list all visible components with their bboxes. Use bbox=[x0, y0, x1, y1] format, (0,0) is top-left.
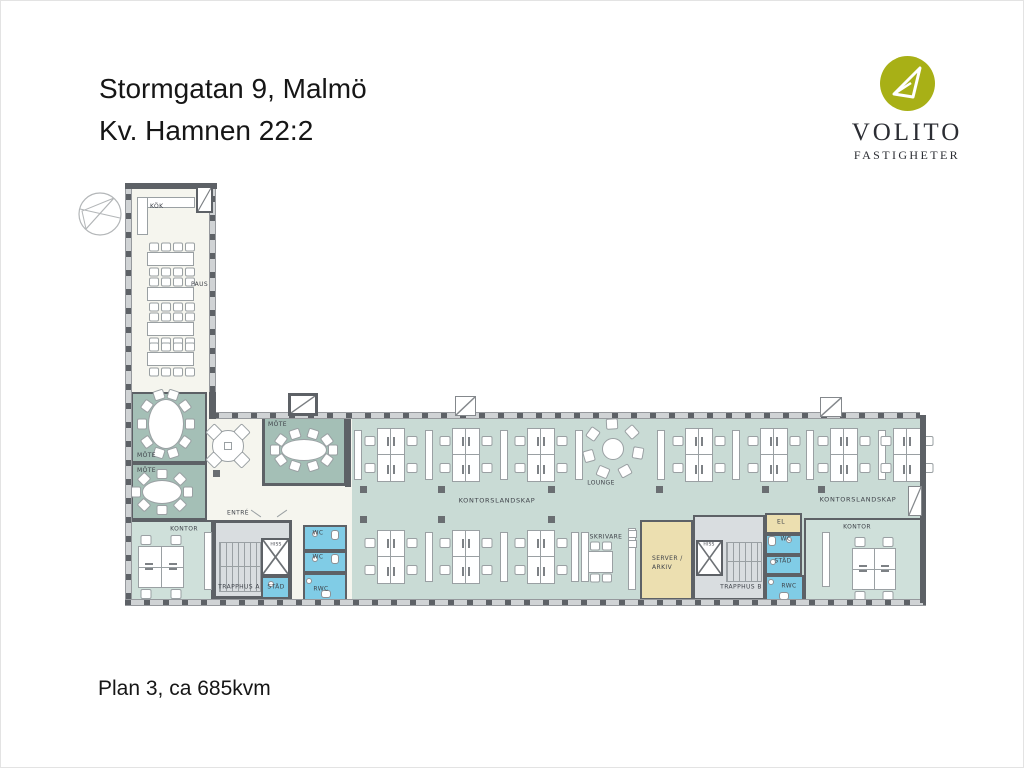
desk-divider bbox=[843, 428, 844, 482]
room-label-mote-center: MÖTE bbox=[268, 421, 287, 428]
area-label-kontorslandskap-right: KONTORSLANDSKAP bbox=[820, 497, 897, 504]
monitor bbox=[770, 465, 772, 474]
chair bbox=[173, 343, 183, 352]
chair bbox=[855, 537, 866, 547]
monitor bbox=[695, 437, 697, 446]
room-label-server-1: SERVER / bbox=[652, 555, 683, 562]
monitor bbox=[462, 567, 464, 576]
chair bbox=[185, 313, 195, 322]
chair bbox=[790, 463, 801, 473]
monitor bbox=[468, 539, 470, 548]
monitor bbox=[909, 465, 911, 474]
monitor bbox=[145, 563, 153, 565]
area-label-kontorslandskap-left: KONTORSLANDSKAP bbox=[459, 498, 536, 505]
cabinet bbox=[500, 532, 508, 582]
chair bbox=[818, 436, 829, 446]
room-label-rwc-w: RWC bbox=[313, 586, 328, 593]
monitor bbox=[537, 539, 539, 548]
monitor bbox=[387, 437, 389, 446]
chair bbox=[173, 243, 183, 252]
monitor bbox=[701, 437, 703, 446]
desk-cluster bbox=[527, 428, 555, 482]
chair bbox=[185, 243, 195, 252]
monitor bbox=[393, 567, 395, 576]
room-label-kontor-sw: KONTOR bbox=[170, 526, 198, 533]
room-label-trapphus-b: TRAPPHUS B bbox=[720, 584, 762, 591]
chair bbox=[515, 538, 526, 548]
conference-table bbox=[281, 439, 327, 461]
chair bbox=[590, 574, 600, 583]
chair bbox=[173, 368, 183, 377]
monitor bbox=[462, 437, 464, 446]
column bbox=[213, 470, 220, 477]
room-label-hiss-b: HISS bbox=[703, 542, 714, 549]
toilet-fixture bbox=[768, 536, 776, 546]
chair bbox=[270, 445, 280, 456]
window-band-west bbox=[125, 189, 132, 599]
monitor bbox=[695, 465, 697, 474]
monitor bbox=[393, 465, 395, 474]
entry-table-center bbox=[224, 442, 232, 450]
chair bbox=[407, 565, 418, 575]
desk-divider bbox=[465, 530, 466, 584]
east-door-box bbox=[908, 486, 922, 516]
chair bbox=[407, 463, 418, 473]
chair bbox=[881, 463, 892, 473]
chair bbox=[157, 469, 168, 479]
room-label-stad-a: STÄD bbox=[267, 584, 284, 591]
room-label-wc-e: WC bbox=[781, 536, 792, 543]
desk-cluster bbox=[452, 530, 480, 584]
monitor bbox=[701, 465, 703, 474]
cabinet bbox=[571, 532, 579, 582]
desk-divider bbox=[390, 530, 391, 584]
desk-divider bbox=[698, 428, 699, 482]
room-label-stad-e: STÄD bbox=[774, 558, 791, 565]
skrivare-table bbox=[588, 551, 613, 573]
cabinet bbox=[425, 532, 433, 582]
monitor bbox=[903, 437, 905, 446]
desk-divider bbox=[390, 428, 391, 482]
cabinet bbox=[500, 430, 508, 480]
chair bbox=[440, 538, 451, 548]
chair bbox=[673, 463, 684, 473]
monitor bbox=[468, 437, 470, 446]
facade-box bbox=[288, 393, 318, 416]
chair bbox=[715, 436, 726, 446]
chair bbox=[185, 419, 195, 430]
desk-divider bbox=[893, 454, 921, 455]
desk-cluster bbox=[377, 530, 405, 584]
kitchen-counter bbox=[137, 197, 148, 235]
lounge-table bbox=[602, 438, 624, 460]
room-wc-w2 bbox=[303, 551, 347, 573]
printer-unit bbox=[628, 530, 637, 538]
chair bbox=[173, 268, 183, 277]
chair bbox=[173, 303, 183, 312]
room-label-kontor-se: KONTOR bbox=[843, 524, 871, 531]
chair bbox=[673, 436, 684, 446]
cabinet bbox=[425, 430, 433, 480]
monitor bbox=[543, 437, 545, 446]
cabinet bbox=[657, 430, 665, 480]
facade-box bbox=[820, 397, 842, 417]
chair bbox=[185, 303, 195, 312]
monitor bbox=[776, 437, 778, 446]
chair bbox=[365, 565, 376, 575]
chair bbox=[407, 436, 418, 446]
column bbox=[360, 486, 367, 493]
chair bbox=[881, 436, 892, 446]
chair bbox=[482, 565, 493, 575]
monitor bbox=[881, 565, 889, 567]
chair bbox=[365, 538, 376, 548]
desk-divider bbox=[452, 556, 480, 557]
monitor bbox=[840, 437, 842, 446]
chair bbox=[557, 436, 568, 446]
chair bbox=[590, 542, 600, 551]
chair bbox=[365, 463, 376, 473]
monitor bbox=[537, 567, 539, 576]
room-label-wc-w2: WC bbox=[313, 554, 324, 561]
chair bbox=[161, 268, 171, 277]
chair bbox=[173, 313, 183, 322]
chair bbox=[883, 537, 894, 547]
chair bbox=[748, 436, 759, 446]
monitor bbox=[387, 465, 389, 474]
desk-cluster bbox=[527, 530, 555, 584]
monitor bbox=[543, 539, 545, 548]
monitor bbox=[169, 563, 177, 565]
chair bbox=[631, 446, 644, 460]
chair bbox=[440, 436, 451, 446]
chair bbox=[818, 463, 829, 473]
column bbox=[360, 516, 367, 523]
chair bbox=[365, 436, 376, 446]
desk-cluster bbox=[452, 428, 480, 482]
desk-divider bbox=[830, 454, 858, 455]
chair bbox=[161, 368, 171, 377]
monitor bbox=[387, 539, 389, 548]
chair bbox=[515, 565, 526, 575]
monitor bbox=[145, 568, 153, 570]
chair bbox=[141, 589, 152, 599]
chair bbox=[557, 538, 568, 548]
chair bbox=[185, 368, 195, 377]
chair bbox=[149, 368, 159, 377]
monitor bbox=[462, 465, 464, 474]
monitor bbox=[770, 437, 772, 446]
chair bbox=[605, 418, 618, 430]
room-label-wc-w1: WC bbox=[313, 530, 324, 537]
monitor bbox=[859, 565, 867, 567]
desk-cluster bbox=[760, 428, 788, 482]
window-band-wing-east bbox=[209, 189, 216, 392]
monitor bbox=[468, 567, 470, 576]
chair bbox=[149, 243, 159, 252]
wall-corridor-divider bbox=[345, 419, 351, 487]
chair bbox=[860, 436, 871, 446]
room-label-trapphus-a: TRAPPHUS A bbox=[218, 584, 260, 591]
chair bbox=[860, 463, 871, 473]
monitor bbox=[846, 437, 848, 446]
chair bbox=[482, 538, 493, 548]
toilet-fixture bbox=[331, 554, 339, 564]
stairs-a-landing bbox=[219, 566, 261, 567]
chair bbox=[440, 463, 451, 473]
room-label-hiss-a: HISS bbox=[270, 542, 281, 549]
room-label-rwc-e: RWC bbox=[781, 583, 796, 590]
monitor bbox=[468, 465, 470, 474]
monitor bbox=[387, 567, 389, 576]
paus-table bbox=[147, 287, 194, 301]
room-wc-w1 bbox=[303, 525, 347, 551]
chair bbox=[790, 436, 801, 446]
desk-divider bbox=[527, 556, 555, 557]
desk-cluster bbox=[893, 428, 921, 482]
chair bbox=[149, 313, 159, 322]
chair bbox=[602, 574, 612, 583]
room-label-el: EL bbox=[777, 519, 785, 526]
column bbox=[438, 516, 445, 523]
cabinet bbox=[354, 430, 362, 480]
chair bbox=[440, 565, 451, 575]
window-band-north bbox=[213, 412, 920, 419]
desk-divider bbox=[465, 428, 466, 482]
floor-plan: KÖK PAUS MÖTE MÖTE MÖTE KONTOR ENTRÉ TRA… bbox=[0, 0, 1024, 768]
chair bbox=[173, 278, 183, 287]
monitor bbox=[393, 539, 395, 548]
monitor bbox=[537, 437, 539, 446]
chair bbox=[185, 343, 195, 352]
desk-divider bbox=[540, 428, 541, 482]
chair bbox=[149, 278, 159, 287]
cabinet bbox=[204, 532, 212, 590]
monitor bbox=[881, 570, 889, 572]
desk-divider bbox=[540, 530, 541, 584]
chair bbox=[515, 436, 526, 446]
monitor bbox=[776, 465, 778, 474]
chair bbox=[185, 268, 195, 277]
sink-fixture bbox=[768, 579, 774, 585]
cabinet bbox=[732, 430, 740, 480]
chair bbox=[715, 463, 726, 473]
chair bbox=[748, 463, 759, 473]
chair bbox=[131, 487, 141, 498]
chair bbox=[482, 463, 493, 473]
printer-unit bbox=[628, 540, 637, 548]
toilet-fixture bbox=[331, 530, 339, 540]
desk-divider bbox=[377, 454, 405, 455]
chair bbox=[183, 487, 193, 498]
desk-divider bbox=[685, 454, 713, 455]
chair bbox=[149, 303, 159, 312]
area-label-skrivare: SKRIVARE bbox=[590, 534, 623, 541]
monitor bbox=[543, 567, 545, 576]
paus-table bbox=[147, 352, 194, 366]
chair bbox=[407, 538, 418, 548]
desk-divider bbox=[760, 454, 788, 455]
chair bbox=[137, 419, 147, 430]
cabinet bbox=[822, 532, 830, 587]
monitor bbox=[903, 465, 905, 474]
chair bbox=[149, 343, 159, 352]
stairs-b bbox=[726, 542, 762, 582]
sink-fixture bbox=[306, 578, 312, 584]
chair bbox=[161, 303, 171, 312]
desk-cluster bbox=[830, 428, 858, 482]
slide: Stormgatan 9, Malmö Kv. Hamnen 22:2 VOLI… bbox=[0, 0, 1024, 768]
chair bbox=[515, 463, 526, 473]
desk-divider bbox=[377, 556, 405, 557]
room-label-entre: ENTRÉ bbox=[227, 510, 249, 517]
window-band-south bbox=[125, 599, 926, 606]
north-arrow-icon bbox=[77, 191, 123, 237]
room-label-mote-w: MÖTE bbox=[137, 467, 156, 474]
wall-wing-east-stub bbox=[209, 392, 216, 419]
chair bbox=[149, 268, 159, 277]
paus-table bbox=[147, 322, 194, 336]
chair bbox=[171, 589, 182, 599]
chair bbox=[161, 313, 171, 322]
column bbox=[818, 486, 825, 493]
chair bbox=[157, 505, 168, 515]
chair bbox=[557, 463, 568, 473]
shaft-box bbox=[196, 186, 213, 213]
chair bbox=[602, 542, 612, 551]
monitor bbox=[537, 465, 539, 474]
room-label-mote-nw: MÖTE bbox=[137, 452, 156, 459]
room-label-paus: PAUS bbox=[191, 281, 208, 288]
monitor bbox=[840, 465, 842, 474]
desk-divider bbox=[527, 454, 555, 455]
chair bbox=[161, 343, 171, 352]
chair bbox=[557, 565, 568, 575]
column bbox=[762, 486, 769, 493]
monitor bbox=[543, 465, 545, 474]
column bbox=[548, 516, 555, 523]
monitor bbox=[462, 539, 464, 548]
room-label-server-2: ARKIV bbox=[652, 564, 672, 571]
column bbox=[548, 486, 555, 493]
monitor bbox=[859, 570, 867, 572]
chair bbox=[328, 445, 338, 456]
chair bbox=[171, 535, 182, 545]
cabinet bbox=[806, 430, 814, 480]
desk-divider bbox=[906, 428, 907, 482]
desk-cluster bbox=[377, 428, 405, 482]
chair bbox=[161, 278, 171, 287]
area-label-lounge: LOUNGE bbox=[587, 480, 615, 487]
cabinet bbox=[575, 430, 583, 480]
chair bbox=[161, 243, 171, 252]
monitor bbox=[909, 437, 911, 446]
desk-divider bbox=[452, 454, 480, 455]
desk-cluster bbox=[685, 428, 713, 482]
paus-table bbox=[147, 252, 194, 266]
stairs-b-landing bbox=[726, 561, 762, 562]
monitor bbox=[846, 465, 848, 474]
column bbox=[438, 486, 445, 493]
monitor bbox=[393, 437, 395, 446]
desk-divider bbox=[773, 428, 774, 482]
chair bbox=[482, 436, 493, 446]
facade-box bbox=[455, 396, 476, 416]
room-label-kok: KÖK bbox=[150, 203, 163, 210]
column bbox=[656, 486, 663, 493]
monitor bbox=[169, 568, 177, 570]
chair bbox=[141, 535, 152, 545]
